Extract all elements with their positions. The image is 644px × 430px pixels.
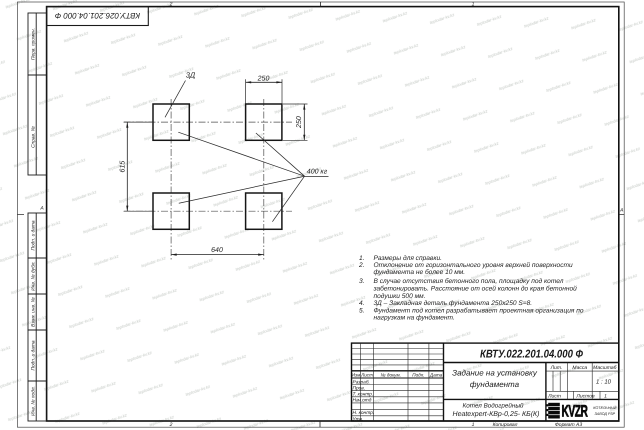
svg-text:КВТУ.026.201.04.000 Ф: КВТУ.026.201.04.000 Ф	[54, 11, 140, 20]
svg-text:забетонировать. Расстояние от: забетонировать. Расстояние от осей колон…	[373, 285, 578, 292]
svg-text:А: А	[39, 206, 44, 212]
svg-text:Дата: Дата	[429, 372, 443, 377]
svg-text:Т. контр.: Т. контр.	[353, 392, 374, 398]
svg-text:В случае отсутствия бетонного: В случае отсутствия бетонного пола, площ…	[374, 278, 564, 285]
svg-text:Фундамент под котел разрабатыв: Фундамент под котел разрабатывает проект…	[374, 308, 584, 315]
svg-text:2: 2	[169, 2, 173, 8]
svg-text:Котел Водогрейный: Котел Водогрейный	[463, 403, 524, 410]
svg-text:615: 615	[119, 161, 126, 173]
svg-text:2: 2	[169, 422, 173, 428]
svg-text:3Д – Закладная деталь фундамен: 3Д – Закладная деталь фундамента 250х250…	[374, 300, 533, 307]
svg-text:400 кг: 400 кг	[307, 169, 328, 176]
svg-text:№ докум.: № докум.	[381, 372, 401, 377]
svg-text:Разраб.: Разраб.	[353, 379, 370, 385]
svg-text:Перв. примен.: Перв. примен.	[31, 28, 37, 60]
svg-text:KVZR: KVZR	[562, 402, 588, 420]
svg-text:Утв.: Утв.	[353, 416, 364, 422]
svg-text:Масса: Масса	[572, 365, 587, 371]
svg-text:Отклонение от горизонтального: Отклонение от горизонтального уровня вер…	[374, 262, 573, 269]
svg-text:Н. контр.: Н. контр.	[353, 410, 375, 416]
svg-text:Лист: Лист	[547, 394, 561, 400]
svg-text:Лит.: Лит.	[550, 365, 563, 371]
svg-text:Нач.отд: Нач.отд	[353, 398, 372, 404]
svg-text:4.: 4.	[359, 300, 365, 307]
svg-text:ЗАВОД РЗР: ЗАВОД РЗР	[595, 412, 616, 416]
svg-text:1 : 10: 1 : 10	[596, 379, 612, 386]
svg-text:Подп.: Подп.	[412, 372, 424, 377]
svg-text:3Д: 3Д	[186, 71, 196, 80]
svg-text:Инв. № дубл.: Инв. № дубл.	[31, 261, 37, 291]
svg-text:3.: 3.	[359, 278, 365, 285]
svg-text:Изм: Изм	[352, 372, 361, 377]
svg-text:2.: 2.	[358, 262, 365, 269]
svg-text:Подп. и дата: Подп. и дата	[31, 220, 37, 250]
svg-text:Копировал: Копировал	[493, 422, 518, 428]
svg-text:Инв. № подл.: Инв. № подл.	[31, 386, 37, 416]
svg-text:фундамента не более 10 мм.: фундамента не более 10 мм.	[374, 269, 466, 276]
svg-text:1: 1	[472, 422, 475, 428]
svg-text:1: 1	[472, 2, 475, 8]
svg-text:Пров.: Пров.	[353, 386, 366, 392]
svg-text:Лист: Лист	[360, 372, 373, 377]
svg-text:Задание на установку: Задание на установку	[452, 369, 538, 378]
svg-text:250: 250	[296, 116, 303, 129]
svg-text:КОТЕЛЬНЫЙ: КОТЕЛЬНЫЙ	[593, 405, 617, 410]
svg-text:Heatexpert-КВр-0,25- КБ(К): Heatexpert-КВр-0,25- КБ(К)	[453, 410, 540, 418]
svg-text:1: 1	[604, 394, 607, 400]
svg-text:фундамента: фундамента	[470, 380, 520, 389]
svg-text:640: 640	[211, 247, 223, 254]
svg-text:250: 250	[257, 75, 270, 82]
svg-text:Листов: Листов	[575, 394, 595, 400]
svg-text:Подп. и дата: Подп. и дата	[31, 340, 37, 370]
svg-text:Справ. №: Справ. №	[31, 125, 37, 148]
svg-text:Взам. инв. №: Взам. инв. №	[31, 296, 37, 326]
svg-text:нагрузкам на фундамент.: нагрузкам на фундамент.	[374, 315, 455, 322]
svg-text:КВТУ.022.201.04.000 Ф: КВТУ.022.201.04.000 Ф	[480, 349, 583, 361]
svg-text:Масштаб: Масштаб	[593, 365, 617, 371]
svg-text:Формат А3: Формат А3	[555, 422, 583, 428]
svg-text:5.: 5.	[359, 308, 365, 315]
svg-text:А: А	[619, 208, 624, 214]
